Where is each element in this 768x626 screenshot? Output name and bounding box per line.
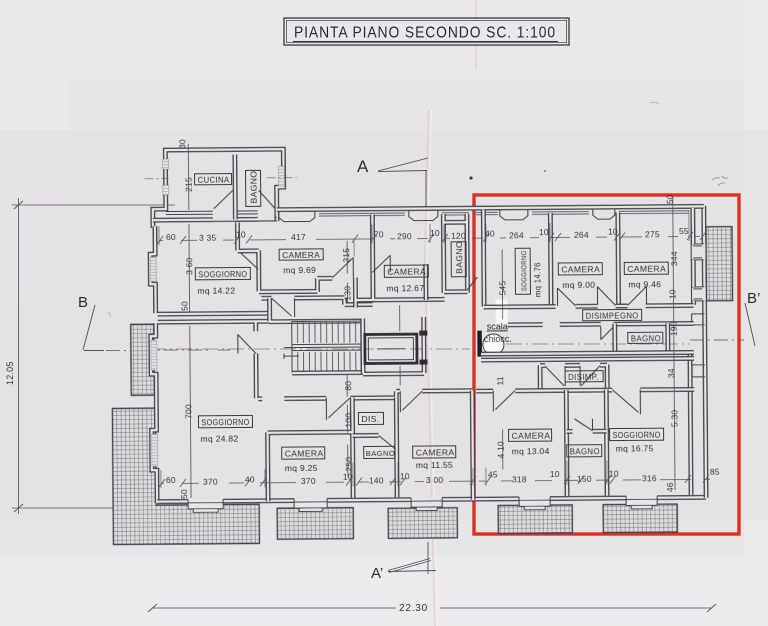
svg-text:scala: scala (487, 321, 508, 331)
svg-text:30: 30 (177, 139, 187, 149)
svg-text:130: 130 (342, 286, 352, 301)
svg-text:370: 370 (301, 476, 316, 486)
svg-text:215: 215 (184, 177, 194, 192)
svg-text:4 10: 4 10 (496, 441, 506, 458)
svg-text:264: 264 (574, 230, 589, 240)
svg-text:250: 250 (344, 457, 354, 472)
svg-text:10: 10 (667, 289, 677, 299)
svg-text:mq 9.00: mq 9.00 (562, 280, 595, 290)
svg-text:55: 55 (679, 226, 689, 236)
svg-text:140: 140 (369, 475, 384, 485)
svg-text:120: 120 (451, 231, 466, 241)
svg-text:11: 11 (495, 376, 505, 385)
svg-text:417: 417 (291, 232, 306, 242)
svg-text:PIANTA PIANO SECONDO SC. 1:100: PIANTA PIANO SECONDO SC. 1:100 (294, 25, 556, 42)
svg-text:BAGNO: BAGNO (570, 447, 600, 456)
svg-text:370: 370 (203, 477, 218, 487)
svg-text:3 60: 3 60 (184, 257, 194, 274)
svg-text:BAGNO: BAGNO (366, 449, 396, 458)
svg-text:SOGGIORNO: SOGGIORNO (519, 250, 528, 291)
svg-text:60: 60 (166, 232, 176, 242)
svg-text:mq 14.76: mq 14.76 (533, 262, 542, 297)
svg-text:mq 16.75: mq 16.75 (616, 443, 654, 453)
svg-text:40: 40 (245, 474, 255, 484)
svg-text:CAMERA: CAMERA (387, 267, 426, 277)
svg-text:3 35: 3 35 (199, 233, 216, 243)
svg-text:45: 45 (488, 469, 498, 479)
svg-text:A’: A’ (371, 565, 383, 582)
svg-text:46: 46 (665, 482, 675, 492)
svg-text:DIS.: DIS. (361, 414, 379, 424)
svg-text:CUCINA: CUCINA (198, 175, 230, 185)
svg-text:40: 40 (485, 228, 495, 238)
svg-text:CAMERA: CAMERA (561, 264, 600, 274)
svg-text:290: 290 (397, 231, 412, 241)
svg-text:SOGGIORNO: SOGGIORNO (201, 417, 249, 427)
svg-text:10: 10 (550, 469, 560, 479)
svg-text:SOGGIORNO: SOGGIORNO (613, 430, 661, 440)
svg-text:3 00: 3 00 (426, 475, 443, 485)
svg-text:DISIMP.: DISIMP. (568, 373, 599, 382)
svg-text:190: 190 (669, 321, 679, 336)
svg-text:12.05: 12.05 (5, 361, 15, 385)
svg-text:A: A (357, 157, 369, 176)
svg-text:10: 10 (608, 227, 618, 237)
svg-text:50: 50 (180, 301, 190, 311)
svg-text:CAMERA: CAMERA (627, 264, 666, 274)
svg-text:DISIMPEGNO: DISIMPEGNO (586, 311, 639, 320)
svg-text:CAMERA: CAMERA (512, 431, 551, 441)
svg-text:215: 215 (341, 248, 351, 263)
svg-text:344: 344 (669, 251, 679, 266)
svg-text:85: 85 (710, 467, 720, 477)
svg-text:316: 316 (642, 473, 657, 483)
svg-text:150: 150 (577, 474, 592, 484)
svg-text:10: 10 (539, 227, 549, 237)
svg-text:700: 700 (183, 404, 193, 419)
svg-text:10: 10 (609, 469, 619, 479)
svg-text:mq 12.67: mq 12.67 (386, 283, 424, 293)
svg-text:BAGNO: BAGNO (454, 241, 464, 274)
svg-text:chiocc.: chiocc. (484, 334, 512, 344)
svg-text:318: 318 (512, 474, 527, 484)
svg-text:CAMERA: CAMERA (282, 250, 320, 260)
svg-text:50: 50 (179, 489, 189, 499)
svg-text:80: 80 (343, 381, 353, 391)
svg-text:34: 34 (666, 368, 676, 378)
svg-text:mq 11.55: mq 11.55 (416, 460, 453, 470)
svg-text:CAMERA: CAMERA (416, 447, 455, 457)
svg-text:BAGNO: BAGNO (631, 334, 661, 343)
svg-text:10: 10 (430, 228, 440, 238)
svg-text:275: 275 (645, 229, 660, 239)
svg-text:B’: B’ (747, 290, 760, 307)
svg-text:70: 70 (374, 229, 384, 239)
svg-text:22.30: 22.30 (399, 603, 428, 614)
svg-text:CAMERA: CAMERA (285, 448, 324, 458)
svg-text:B: B (78, 294, 88, 311)
svg-text:mq 14.22: mq 14.22 (197, 286, 235, 296)
svg-text:BAGNO: BAGNO (249, 171, 259, 204)
svg-text:10: 10 (400, 471, 410, 481)
svg-text:264: 264 (509, 230, 524, 240)
svg-text:10: 10 (236, 229, 246, 239)
svg-text:mq 13.04: mq 13.04 (512, 446, 550, 456)
svg-text:545: 545 (497, 281, 507, 296)
svg-text:mq 9.69: mq 9.69 (283, 265, 316, 275)
svg-text:60: 60 (166, 475, 176, 485)
svg-text:mq 24.82: mq 24.82 (201, 434, 239, 444)
svg-text:mq 9.25: mq 9.25 (285, 463, 318, 473)
svg-text:mq 9.46: mq 9.46 (628, 279, 661, 289)
svg-text:100: 100 (343, 413, 353, 428)
svg-text:50: 50 (665, 194, 675, 204)
svg-text:SOGGIORNO: SOGGIORNO (198, 269, 247, 279)
svg-text:5.30: 5.30 (669, 410, 679, 427)
